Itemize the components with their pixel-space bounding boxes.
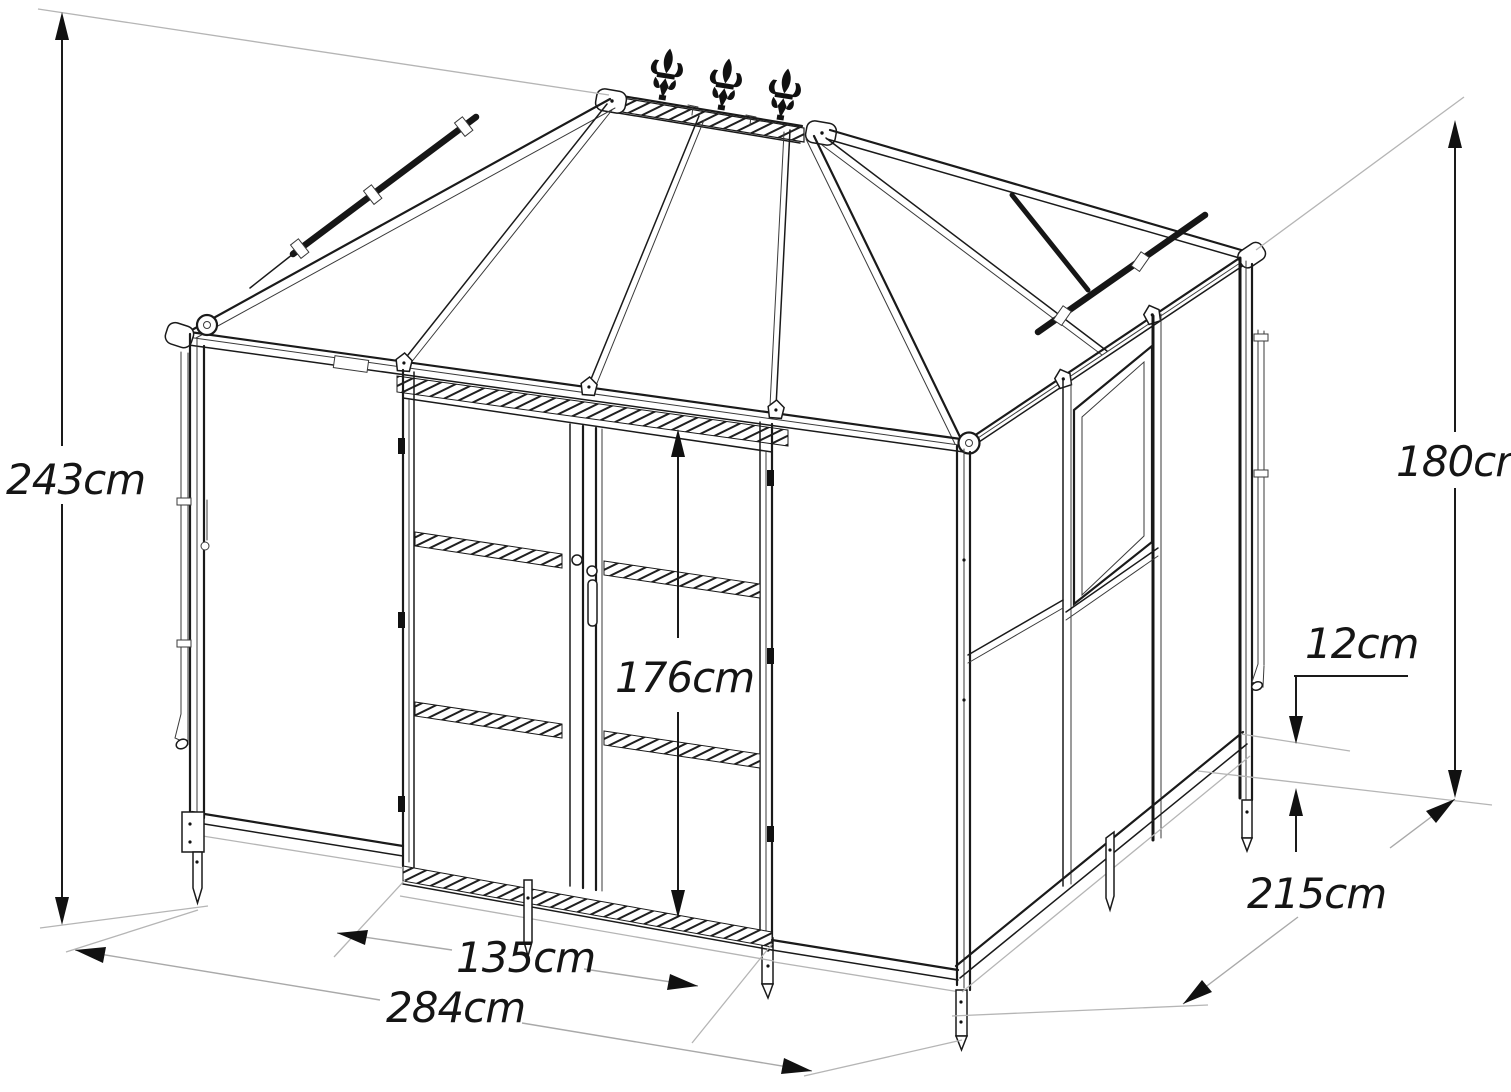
arrowhead-down-icon [1289, 716, 1303, 744]
door-handle-left [572, 555, 582, 565]
arrowhead-up-icon [1289, 788, 1303, 816]
label-total-height: 243cm [6, 455, 145, 504]
dimension-depth: 215cm [1183, 799, 1455, 1004]
door-handle-right [587, 566, 597, 576]
dimension-door-height: 176cm [615, 429, 754, 918]
hinge-icon [398, 796, 405, 812]
door-lever-handle [588, 580, 597, 626]
door-rail [604, 731, 760, 768]
door-right-jamb [760, 422, 774, 998]
panel-rail [968, 600, 1063, 655]
arrowhead-down-icon [55, 897, 69, 925]
post-foot [956, 990, 967, 1036]
door-left-jamb [398, 370, 414, 868]
arrowhead-left-icon [337, 930, 368, 945]
hip-rafters [190, 99, 1248, 444]
downpipe-left [175, 352, 191, 751]
greenhouse-dimension-diagram: 243cm 180cm 176cm 12cm 135cm 284cm [0, 0, 1511, 1092]
base-end-plate [182, 812, 204, 852]
hinge-icon [398, 612, 405, 628]
post-foot [1242, 800, 1252, 838]
roof-vent-right [1012, 195, 1205, 332]
dimension-total-height: 243cm [6, 12, 145, 925]
arrowhead-right-icon [667, 974, 698, 990]
height-leader-line [38, 9, 609, 95]
arrowhead-down-icon [671, 890, 685, 918]
fleur-de-lis-finial-icon [764, 66, 804, 122]
label-total-width: 284cm [386, 983, 525, 1032]
corner-ball-connector-left [197, 315, 217, 335]
label-door-width: 135cm [456, 933, 595, 982]
arrowhead-right-icon [1426, 799, 1455, 823]
rafter-clip-icon [580, 376, 597, 395]
door-rail [604, 561, 760, 598]
arrowhead-right-icon [781, 1058, 812, 1074]
hinge-icon [767, 826, 774, 842]
label-base-height: 12cm [1305, 619, 1418, 668]
post-latch [201, 542, 209, 550]
diagram-svg: 243cm 180cm 176cm 12cm 135cm 284cm [0, 0, 1511, 1092]
fleur-de-lis-finial-icon [646, 46, 686, 102]
dimension-side-height: 180cm [1396, 120, 1511, 798]
arrowhead-up-icon [55, 12, 69, 40]
door-rail [415, 532, 562, 568]
hinge-icon [767, 648, 774, 664]
roof [190, 46, 1248, 444]
rafter-clip-icon [395, 352, 412, 371]
label-depth: 215cm [1247, 869, 1386, 918]
corner-ball-connector-front-right [959, 433, 980, 454]
roof-rafters-front [404, 104, 790, 407]
arrowhead-left-icon [1183, 980, 1212, 1004]
arrowhead-down-icon [1448, 770, 1462, 798]
dimension-total-width: 284cm [75, 947, 812, 1074]
dimension-base-height: 12cm [1289, 619, 1418, 852]
roof-rafter-right [822, 138, 1107, 355]
label-side-height: 180cm [1396, 437, 1511, 486]
hinge-icon [767, 470, 774, 486]
arrowhead-left-icon [75, 947, 106, 963]
arrowhead-up-icon [671, 429, 685, 457]
front-left-post [190, 334, 209, 818]
ground-stake [193, 852, 202, 903]
side-window [1066, 346, 1158, 620]
fleur-de-lis-finial-icon [705, 56, 745, 112]
ground-stake [1106, 832, 1114, 910]
label-door-height: 176cm [615, 653, 754, 702]
right-base-rail [956, 732, 1250, 992]
side-height-leader-line [1256, 97, 1464, 250]
right-side-wall [956, 258, 1268, 992]
right-wall-mullion-2 [1153, 314, 1161, 840]
hinge-icon [398, 438, 405, 454]
right-wall-mullion-1 [1063, 378, 1071, 886]
arrowhead-up-icon [1448, 120, 1462, 148]
eave-joint-plate [333, 356, 368, 373]
door-rail [415, 702, 562, 738]
